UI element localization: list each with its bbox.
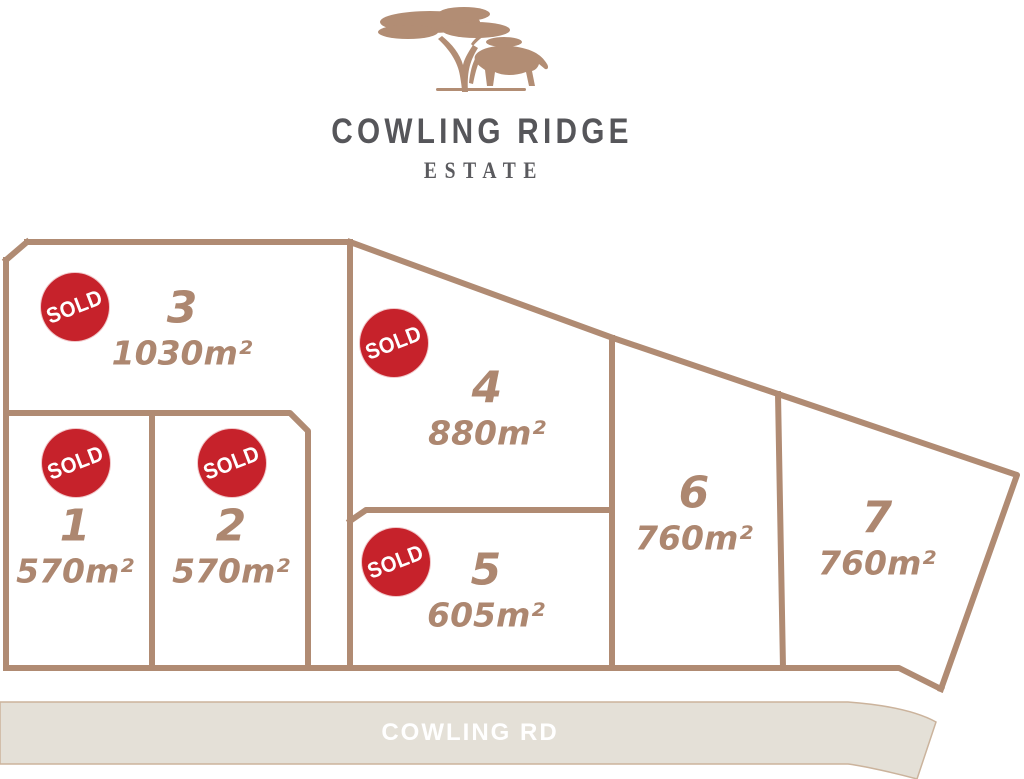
lot-number: 2 xyxy=(172,505,290,549)
lot-number: 6 xyxy=(635,472,753,516)
sold-badge-lot-2: SOLD xyxy=(198,429,266,497)
sold-badge-text: SOLD xyxy=(43,284,107,329)
sold-badge-text: SOLD xyxy=(362,320,426,365)
lot-number: 7 xyxy=(818,497,936,541)
lot-number: 5 xyxy=(427,549,545,593)
lot-3-label: 3 1030m² xyxy=(112,287,253,370)
lot-5-label: 5 605m² xyxy=(427,549,545,632)
estate-plan-page: COWLING RIDGE ESTATE COWLING RD 1 570m² … xyxy=(0,0,1024,779)
sold-badge-text: SOLD xyxy=(200,440,264,485)
lot-area: 570m² xyxy=(172,555,290,588)
lot-number: 3 xyxy=(112,287,253,331)
sold-badge-lot-5: SOLD xyxy=(362,528,430,596)
lot-2-label: 2 570m² xyxy=(172,505,290,588)
lot-area: 760m² xyxy=(818,547,936,580)
lot-area: 605m² xyxy=(427,599,545,632)
sold-badge-text: SOLD xyxy=(364,539,428,584)
lot-area: 1030m² xyxy=(112,337,253,370)
lot-6-label: 6 760m² xyxy=(635,472,753,555)
lot-7-label: 7 760m² xyxy=(818,497,936,580)
sold-badge-text: SOLD xyxy=(44,440,108,485)
lot-4-label: 4 880m² xyxy=(428,367,546,450)
road-name-label: COWLING RD xyxy=(381,719,558,747)
lot-area: 880m² xyxy=(428,417,546,450)
lot-1-label: 1 570m² xyxy=(16,505,134,588)
lot-number: 4 xyxy=(428,367,546,411)
lot-area: 760m² xyxy=(635,522,753,555)
lot-number: 1 xyxy=(16,505,134,549)
sold-badge-lot-3: SOLD xyxy=(41,273,109,341)
sold-badge-lot-1: SOLD xyxy=(42,429,110,497)
lot-area: 570m² xyxy=(16,555,134,588)
sold-badge-lot-4: SOLD xyxy=(360,309,428,377)
